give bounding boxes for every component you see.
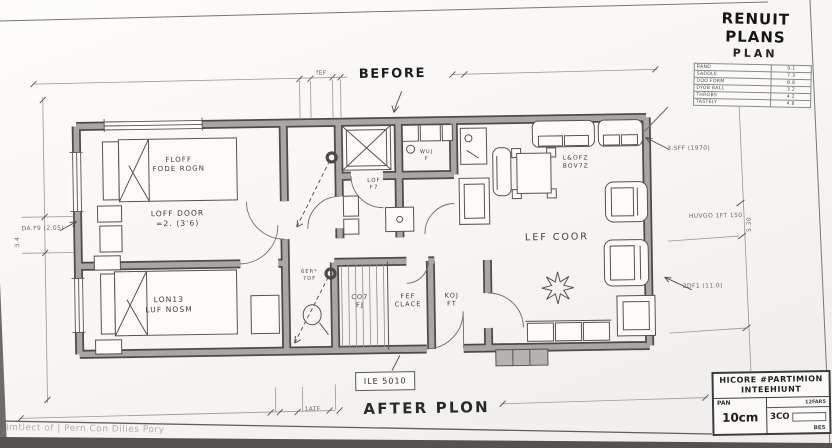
scale-value: 10cm [714,410,766,425]
title-block: HICORE #PARTIMION INTEEHIUNT PAN 10cm 12… [711,370,831,436]
legend-table: RAND9.1 SADDLE7.3 DOO FORM8.8 DYOB BALL3… [693,63,812,108]
sheet-title: RENUIT PLANS [694,9,817,48]
empty-field-box [792,412,826,422]
furniture [92,119,656,372]
sheet-number: 3CO [767,412,790,422]
sheet-number-row: 3CO [767,407,829,426]
title-block-name: HICORE #PARTIMION INTEEHIUNT [713,372,828,399]
legend-panel: RENUIT PLANS PLAN RAND9.1 SADDLE7.3 DOO … [693,9,817,109]
sheet-subtitle: PLAN [694,46,816,62]
title-block-meta-cell: 12FAR5 3CO BE5 [767,397,830,433]
title-block-body: PAN 10cm 12FAR5 3CO BE5 [714,397,830,434]
plan-group [12,65,754,424]
revision-code: BE5 [767,425,829,433]
legend-label: TASTELY [694,98,771,107]
title-block-scale-cell: PAN 10cm [714,398,767,434]
paper-edge-bottom [0,437,832,448]
legend-value: 4.8 [771,100,811,108]
wardrobe-hatch [341,262,388,351]
scale-label: PAN [717,400,731,407]
floor-plan-sheet: BEFORE AFTER PLON fEF 1ATF FLOFF FODE RO… [0,0,832,448]
title-block-name-line2: INTEEHIUNT [714,384,829,396]
